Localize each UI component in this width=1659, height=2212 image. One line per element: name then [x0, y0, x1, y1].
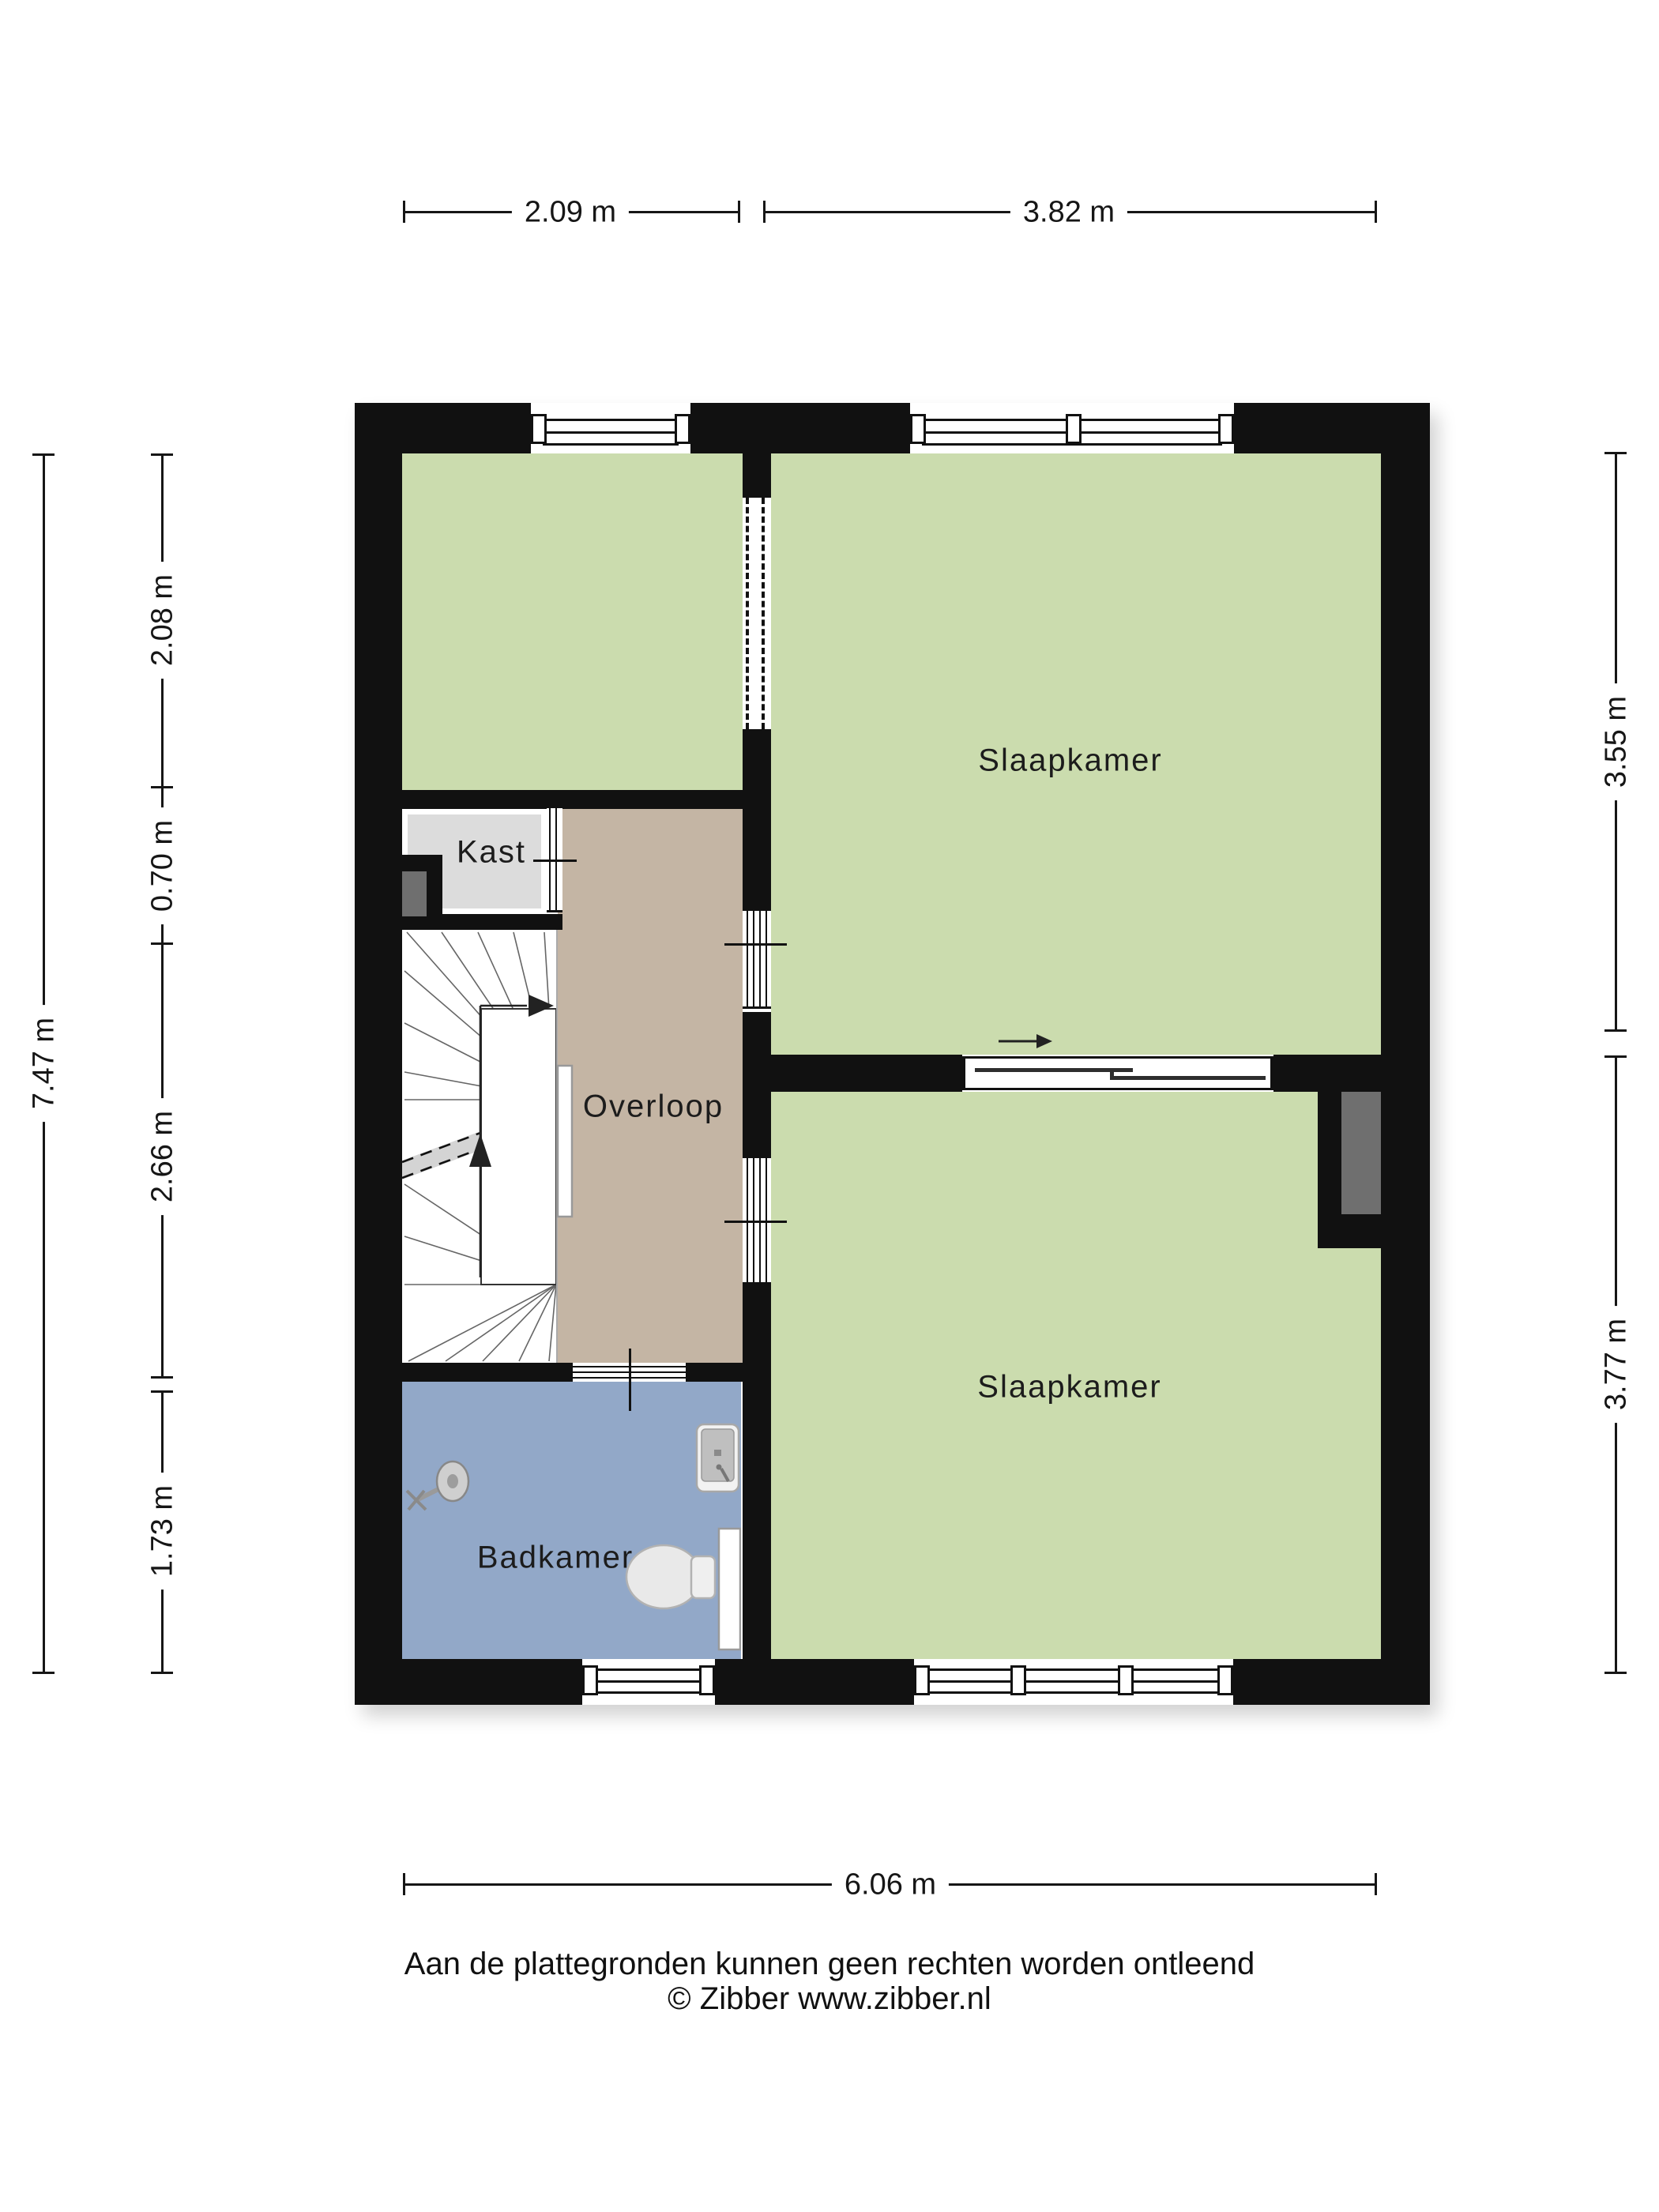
wall-segment	[1381, 403, 1430, 1705]
winder-staircase-icon	[402, 930, 574, 1363]
dim-label-left-3: 2.66 m	[146, 1098, 180, 1215]
stairs-railing	[558, 1066, 572, 1217]
wall-segment	[715, 1659, 914, 1705]
window-top-left	[531, 403, 690, 453]
window-cap	[582, 1665, 598, 1695]
wall-segment	[743, 1382, 771, 1659]
wall-segment	[355, 1659, 582, 1705]
dim-tick	[32, 1672, 55, 1674]
dim-tick	[151, 942, 173, 945]
dim-label-top-2: 3.82 m	[1010, 196, 1127, 230]
wall-segment	[743, 729, 771, 908]
wall-segment	[743, 1012, 771, 1156]
dim-tick	[151, 1390, 173, 1393]
door-slaapkamer-top	[743, 908, 771, 1009]
window-cap	[699, 1665, 715, 1695]
dim-label-bottom: 6.06 m	[832, 1868, 949, 1902]
sliding-door-panel	[1110, 1076, 1266, 1080]
shower-head-icon	[407, 1461, 468, 1510]
shaft-kast	[402, 871, 427, 916]
window-cap	[1217, 1665, 1233, 1695]
dashed-line	[762, 498, 765, 729]
dim-tick	[151, 786, 173, 788]
wall-segment	[355, 403, 402, 1705]
dim-tick	[763, 201, 766, 223]
door-stripes	[747, 911, 767, 1006]
wall-opening-dashed	[743, 498, 771, 729]
dim-label-left-1: 2.08 m	[146, 562, 180, 679]
dim-label-right-2: 3.77 m	[1600, 1306, 1634, 1423]
wall-segment	[1318, 1214, 1381, 1248]
window-glass	[543, 419, 679, 446]
dim-tick	[151, 1376, 173, 1379]
sliding-door	[962, 1056, 1273, 1090]
badkamer-fixtures	[402, 1382, 741, 1659]
dim-label-left-total: 7.47 m	[28, 1005, 62, 1122]
footer-disclaimer: Aan de plattegronden kunnen geen rechten…	[0, 1947, 1659, 1981]
dim-label-top-1: 2.09 m	[512, 196, 629, 230]
window-cap	[531, 414, 547, 444]
door-tick	[724, 943, 787, 946]
sliding-door-connector	[1110, 1068, 1114, 1080]
dim-tick	[1604, 1672, 1627, 1674]
dim-tick	[403, 201, 405, 223]
window-top-right	[910, 403, 1234, 453]
floorplan-page: { "plan": { "type": "floorplan", "rooms"…	[0, 0, 1659, 2212]
washbasin-icon	[697, 1424, 739, 1492]
shaft-niche	[1341, 1092, 1381, 1214]
dim-label-left-2: 0.70 m	[146, 807, 180, 924]
room-label-overloop: Overloop	[583, 1089, 724, 1125]
window-mullion	[1066, 414, 1082, 444]
wall-segment	[427, 871, 442, 930]
footer-copyright: © Zibber www.zibber.nl	[0, 1981, 1659, 2016]
wall-segment	[690, 403, 910, 453]
wall-segment	[402, 855, 442, 871]
dim-tick	[1604, 452, 1627, 454]
room-overloop	[558, 809, 743, 1363]
window-mullion	[1118, 1665, 1134, 1695]
window-cap	[1218, 414, 1234, 444]
room-label-kast: Kast	[457, 835, 526, 871]
dim-tick	[151, 1672, 173, 1674]
dim-label-right-1: 3.55 m	[1600, 683, 1634, 800]
right-arrow-icon	[997, 1027, 1052, 1055]
window-glass	[926, 1668, 1221, 1694]
room-top-left	[402, 453, 743, 790]
wall-segment	[743, 453, 771, 498]
room-label-badkamer: Badkamer	[477, 1540, 634, 1576]
dim-tick	[151, 453, 173, 456]
door-tick	[724, 1221, 787, 1223]
wall-segment	[771, 1055, 962, 1092]
dim-tick	[1604, 1029, 1627, 1032]
room-label-slaapkamer-bottom: Slaapkamer	[977, 1370, 1161, 1405]
wall-segment	[688, 1363, 771, 1382]
door-tick	[533, 860, 577, 862]
dim-tick	[32, 453, 55, 456]
dim-tick	[738, 201, 740, 223]
dim-tick	[1375, 201, 1377, 223]
window-badkamer	[582, 1659, 715, 1705]
dim-label-left-4: 1.73 m	[146, 1473, 180, 1589]
dim-tick	[1375, 1873, 1377, 1895]
sliding-door-panel	[975, 1068, 1133, 1072]
wall-segment	[355, 1363, 570, 1382]
wall-segment	[355, 790, 771, 809]
dim-tick	[1604, 1055, 1627, 1058]
window-cap	[914, 1665, 930, 1695]
wall-segment	[1273, 1055, 1381, 1092]
window-cap	[675, 414, 690, 444]
wall-segment	[1233, 1659, 1430, 1705]
room-label-slaapkamer-top: Slaapkamer	[978, 743, 1162, 779]
toilet-icon	[626, 1545, 715, 1608]
window-bottom-bedroom	[914, 1659, 1233, 1705]
window-mullion	[1010, 1665, 1026, 1695]
window-cap	[910, 414, 926, 444]
dashed-line	[746, 498, 749, 729]
door-leaf	[719, 1529, 740, 1650]
window-glass	[594, 1668, 703, 1694]
dim-tick	[403, 1873, 405, 1895]
